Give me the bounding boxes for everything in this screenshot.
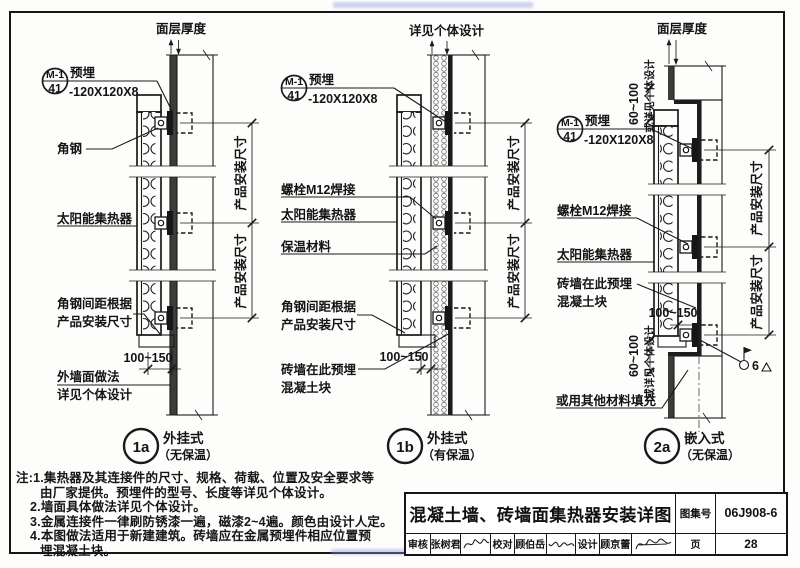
bubble-name: 嵌入式 (684, 430, 725, 446)
niche-dim-alt-label: 或详见个体设计 (643, 59, 656, 133)
check-signature (546, 534, 576, 554)
dimension-face-layer: 面层厚度 (657, 21, 708, 65)
bubble-number: 1a (133, 439, 150, 456)
design-label: 设计 (575, 534, 599, 554)
brick-embed-label-1: 砖墙在此预埋 (557, 276, 633, 291)
solar-collector (397, 95, 435, 347)
brick-embed-label-2: 混凝土块 (281, 380, 332, 395)
dimension-product-size: 产品安装尺寸 产品安装尺寸 (704, 146, 776, 339)
insulation-label: 保温材料 (280, 239, 332, 254)
page-number: 28 (715, 534, 786, 554)
embed-label: 预埋 (585, 113, 611, 128)
dim-gap-label: 100~150 (123, 351, 172, 365)
weld-size-label: 6 (752, 359, 759, 373)
niche-dim-label: 60~100 (627, 83, 641, 125)
dimension-gap: 100~150 (123, 349, 181, 375)
dimension-niche-top: 60~100 或详见个体设计 (627, 59, 656, 133)
detail-2a: 产品安装尺寸 产品安装尺寸 100~150 60~100 或详见个体设计 60~… (556, 21, 776, 463)
dimension-face-layer: 面层厚度 (156, 21, 207, 55)
note-line: 由厂家提供。预埋件的型号、长度等详见个体设计。 (40, 486, 416, 501)
mark-number: 41 (287, 89, 301, 103)
note-line: 4.本图做法适用于新建建筑。砖墙应在金属预埋件相应位置预 (30, 529, 416, 544)
signature-scribble (633, 535, 673, 553)
atlas-number-label: 图集号 (675, 494, 715, 533)
dim-gap-label: 100~150 (648, 306, 697, 320)
mark-number: 41 (563, 130, 577, 144)
bubble-subname: （有保温） (422, 447, 482, 462)
dimension-product-size: 产品安装尺寸 产品安装尺寸 (455, 119, 532, 322)
mark-code: M-1 (285, 76, 303, 88)
design-name: 顾京蕾 (599, 534, 631, 554)
check-label: 校对 (490, 534, 514, 554)
face-layer-label: 面层厚度 (657, 21, 708, 36)
note-line: 注:1.集热器及其连接件的尺寸、规格、荷载、位置及安全要求等 (16, 471, 416, 486)
signature-scribble (547, 535, 575, 553)
angle-steel-label: 角钢 (57, 141, 82, 156)
embed-mark: M-1 41 预埋 -120X120X8 (558, 113, 694, 149)
note-line: 埋混凝土块。 (40, 544, 416, 559)
dim-product-size-label: 产品安装尺寸 (233, 135, 248, 211)
collector-label: 太阳能集热器 (557, 247, 633, 262)
insulation-dim-label: 详见个体设计 (409, 23, 485, 38)
atlas-number: 06J908-6 (715, 494, 786, 533)
bubble-name: 外挂式 (427, 430, 468, 446)
bubble-name: 外挂式 (163, 430, 204, 446)
wall-finish-label-1: 外墙面做法 (56, 369, 120, 384)
collector-label: 太阳能集热器 (57, 211, 133, 226)
mark-code: M-1 (46, 69, 64, 81)
check-name: 顾伯岳 (514, 534, 546, 554)
niche-dim-alt-label: 或详见个体设计 (643, 325, 656, 399)
bubble-number: 1b (396, 439, 414, 456)
wall-section (166, 50, 218, 420)
note-line: 2.墙面具体做法详见个体设计。 (30, 500, 416, 515)
design-signature (631, 534, 676, 554)
detail-1a: 产品安装尺寸 产品安装尺寸 100~150 面层厚度 (43, 21, 260, 463)
dim-product-size-label: 产品安装尺寸 (233, 233, 248, 309)
dimension-niche-bottom: 60~100 或详见个体设计 (627, 325, 656, 399)
bubble-subname: （无保温） (680, 447, 740, 462)
bolt-weld-label: 螺栓M12焊接 (281, 182, 356, 197)
angle-spacing-label-2: 产品安装尺寸 (281, 317, 357, 332)
note-line: 3.金属连接件一律刷防锈漆一遍，磁漆2~4遍。颜色由设计人定。 (30, 515, 416, 530)
embed-mark: M-1 41 预埋 -120X120X8 (282, 72, 453, 126)
signature-scribble (462, 535, 490, 553)
fill-material-label: 或用其他材料填充 (556, 393, 657, 408)
dim-product-size-label: 产品安装尺寸 (749, 254, 764, 330)
wall-section (427, 50, 490, 420)
dim-gap-label: 100~150 (379, 350, 428, 364)
bolt-weld-label: 螺栓M12焊接 (557, 203, 632, 218)
mark-code: M-1 (561, 117, 579, 129)
embed-size-label: -120X120X8 (69, 85, 139, 99)
angle-spacing-label-1: 角钢间距根据 (281, 299, 357, 314)
detail-1b: 产品安装尺寸 产品安装尺寸 100~150 详见个体设计 M-1 (280, 23, 532, 463)
dim-product-size-label: 产品安装尺寸 (506, 233, 521, 309)
page-label: 页 (675, 534, 715, 554)
niche-dim-label: 60~100 (627, 335, 641, 377)
weld-flag-icon (744, 347, 752, 353)
embed-label: 预埋 (70, 65, 96, 80)
detail-bubble-1a: 1a 外挂式 （无保温） (124, 429, 218, 463)
detail-bubble-1b: 1b 外挂式 （有保温） (388, 429, 482, 463)
title-block: 混凝土墙、砖墙面集热器安装详图 图集号 06J908-6 审核 张树君 校对 顾… (404, 492, 788, 556)
embed-size-label: -120X120X8 (584, 133, 654, 147)
embed-label: 预埋 (309, 72, 335, 87)
brick-embed-label-2: 混凝土块 (557, 294, 608, 309)
collector-label: 太阳能集热器 (281, 207, 357, 222)
drawing-title: 混凝土墙、砖墙面集热器安装详图 (406, 494, 675, 533)
detail-drawings: 产品安装尺寸 产品安装尺寸 100~150 面层厚度 (0, 0, 800, 470)
detail-bubble-2a: 2a 嵌入式 （无保温） (645, 429, 740, 463)
wall-finish-label-2: 详见个体设计 (57, 387, 133, 402)
weld-triangle-icon (762, 363, 771, 371)
audit-signature (460, 534, 490, 554)
face-layer-label: 面层厚度 (156, 21, 207, 36)
section-break (648, 184, 726, 283)
embed-mark: M-1 41 预埋 -120X120X8 (43, 65, 173, 111)
drawing-sheet: 产品安装尺寸 产品安装尺寸 100~150 面层厚度 (0, 0, 800, 568)
embed-size-label: -120X120X8 (308, 92, 378, 106)
dimension-insulation: 详见个体设计 (409, 23, 485, 55)
general-notes: 注:1.集热器及其连接件的尺寸、规格、荷载、位置及安全要求等 由厂家提供。预埋件… (16, 471, 416, 558)
dim-product-size-label: 产品安装尺寸 (749, 160, 764, 236)
mark-number: 41 (48, 82, 62, 96)
angle-spacing-label-1: 角钢间距根据 (57, 296, 133, 311)
bubble-number: 2a (654, 439, 671, 456)
brick-embed-label-1: 砖墙在此预埋 (281, 362, 357, 377)
dim-product-size-label: 产品安装尺寸 (506, 135, 521, 211)
bubble-subname: （无保温） (158, 447, 218, 462)
audit-name: 张树君 (430, 534, 461, 554)
angle-spacing-label-2: 产品安装尺寸 (57, 314, 133, 329)
audit-label: 审核 (406, 534, 430, 554)
